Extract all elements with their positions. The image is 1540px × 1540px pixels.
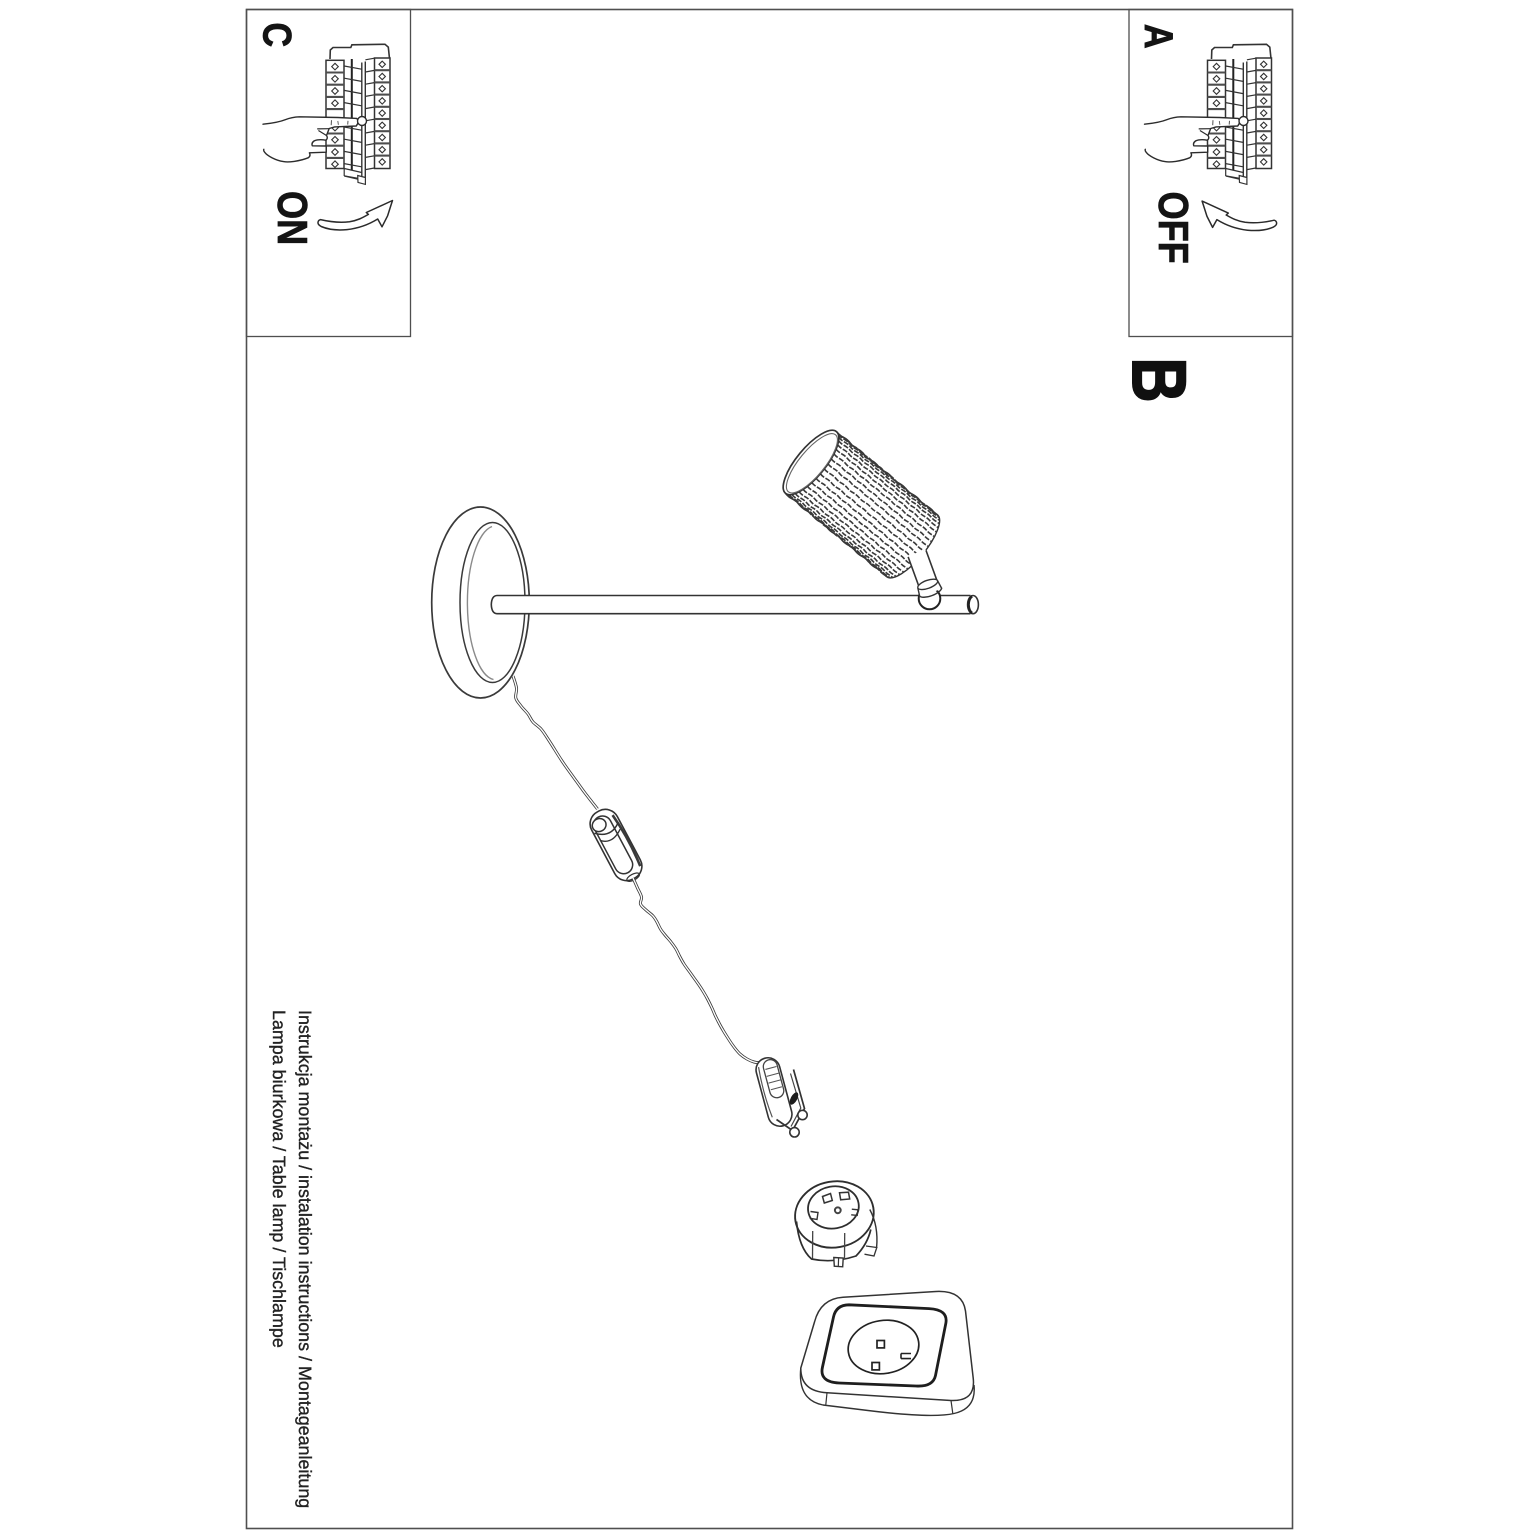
svg-text:B: B <box>1116 358 1201 403</box>
svg-text:C: C <box>255 23 299 48</box>
svg-text:Lampa biurkowa / Table lamp /: Lampa biurkowa / Table lamp / Tischlampe <box>269 1010 289 1348</box>
svg-text:ON: ON <box>269 191 316 245</box>
svg-text:OFF: OFF <box>1150 192 1197 264</box>
svg-text:A: A <box>1136 24 1180 49</box>
svg-text:Instrukcja montażu / instalati: Instrukcja montażu / instalation instruc… <box>295 1010 315 1508</box>
